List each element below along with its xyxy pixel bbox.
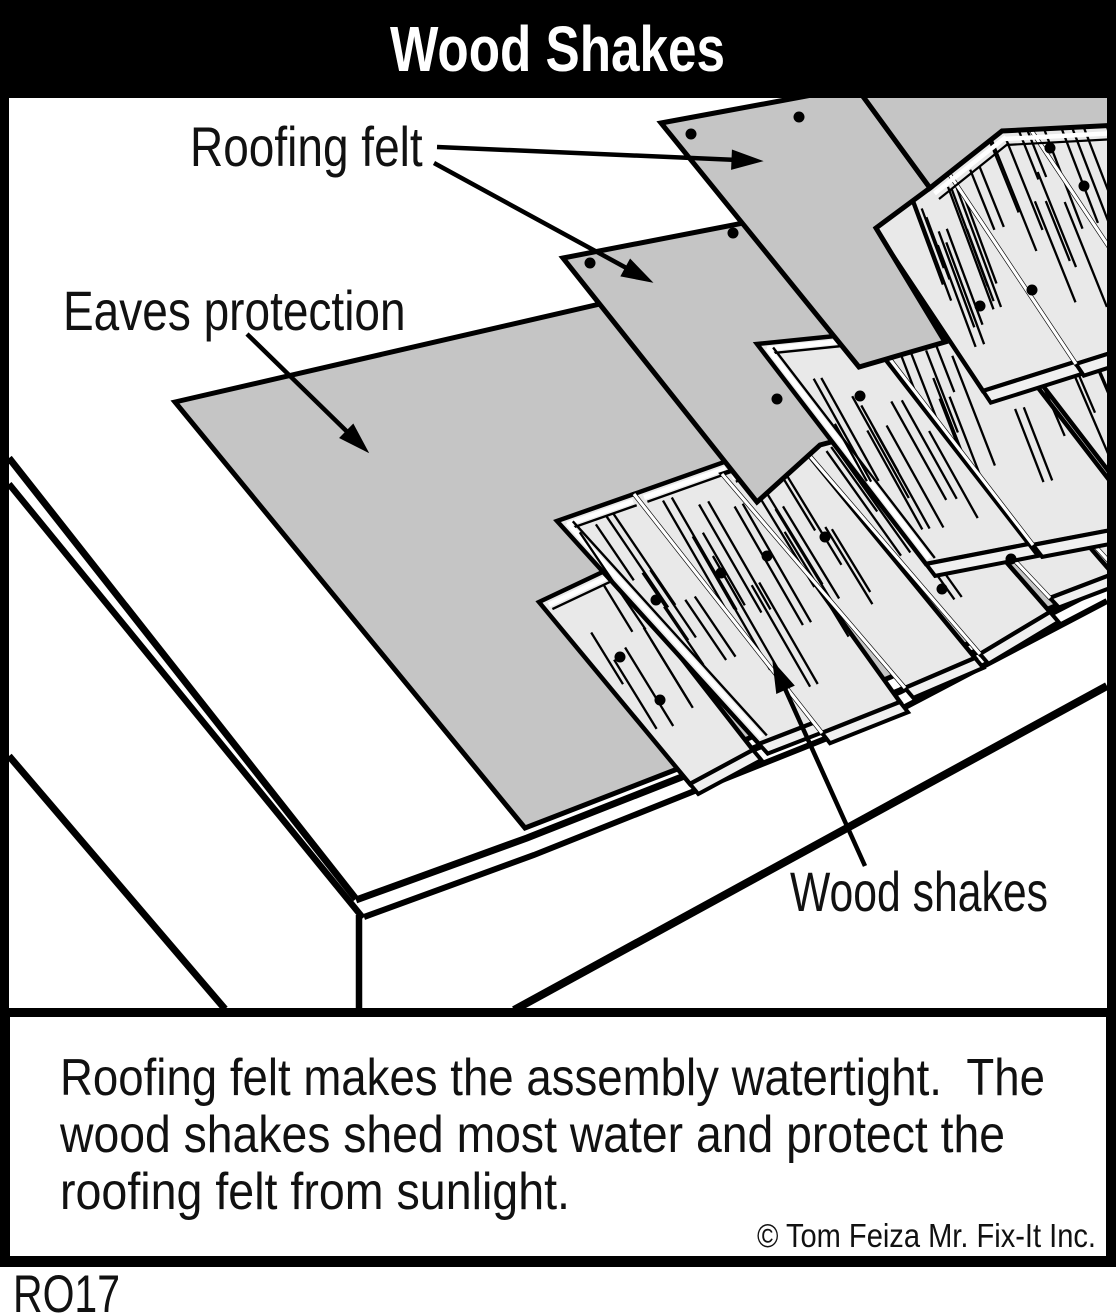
svg-text:Wood Shakes: Wood Shakes [390, 13, 725, 85]
svg-text:Roofing felt makes the assembl: Roofing felt makes the assembly watertig… [60, 1049, 1045, 1107]
svg-text:wood shakes shed most water an: wood shakes shed most water and protect … [59, 1106, 1005, 1164]
svg-text:roofing felt from sunlight.: roofing felt from sunlight. [60, 1163, 570, 1221]
svg-text:Eaves protection: Eaves protection [63, 280, 406, 342]
svg-text:Wood shakes: Wood shakes [790, 861, 1048, 923]
svg-text:RO17: RO17 [13, 1265, 120, 1316]
svg-text:© Tom Feiza Mr. Fix-It Inc.: © Tom Feiza Mr. Fix-It Inc. [757, 1217, 1096, 1255]
svg-text:Roofing felt: Roofing felt [190, 116, 423, 178]
